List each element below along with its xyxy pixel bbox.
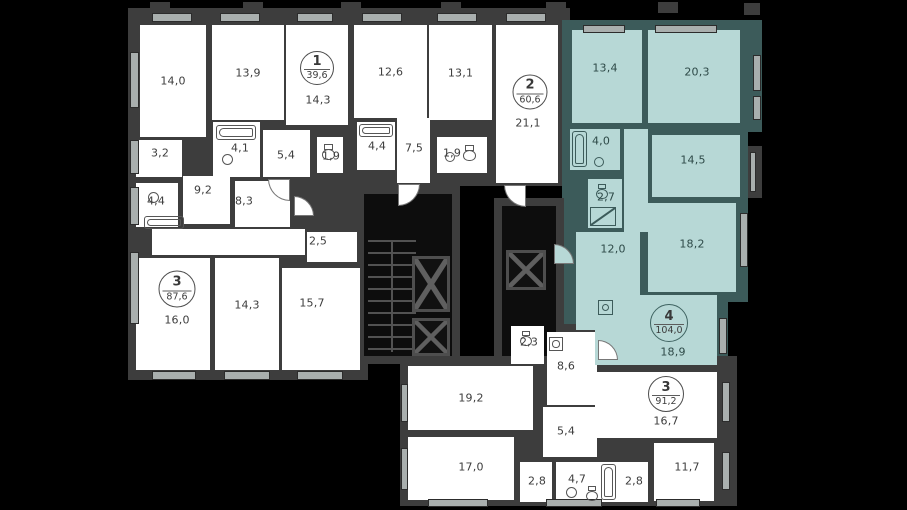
room-area-label: 2,7: [597, 191, 615, 204]
room-area-label: 15,7: [299, 297, 324, 310]
bathtub-icon: [601, 464, 616, 500]
window-mark: [152, 13, 192, 22]
room-13-4[interactable]: [572, 30, 642, 123]
elevator-icon: [412, 256, 450, 312]
washer-icon: [549, 337, 563, 351]
room-area-label: 5,4: [557, 425, 575, 438]
wall-slab: [341, 2, 361, 13]
wall-slab: [441, 2, 461, 13]
room-area-label: 4,1: [231, 142, 249, 155]
room-area-label: 1,9: [322, 150, 340, 163]
window-mark: [220, 13, 260, 22]
stairs-icon: [391, 240, 393, 352]
room-area-label: 5,4: [277, 149, 295, 162]
unit-number: 3: [661, 381, 670, 395]
room-area-label: 13,1: [448, 66, 473, 79]
room-area-label: 9,2: [194, 184, 212, 197]
window-mark: [753, 55, 761, 91]
room-area-label: 14,3: [305, 94, 330, 107]
elevator-icon: [412, 318, 450, 356]
shower-icon: [590, 207, 616, 226]
room-area-label: 16,7: [653, 415, 678, 428]
unit-total-area: 91,2: [655, 397, 676, 407]
window-mark: [506, 13, 546, 22]
room-area-label: 4,4: [147, 195, 165, 208]
room-area-label: 14,3: [234, 299, 259, 312]
window-mark: [152, 371, 196, 380]
toilet-icon: [463, 145, 476, 161]
unit-number: 4: [664, 310, 673, 324]
room-area-label: 2,3: [520, 336, 538, 349]
unit-number: 3: [172, 276, 181, 290]
room-area-label: 8,3: [235, 195, 253, 208]
bathtub-icon: [144, 216, 184, 229]
washer-icon: [598, 300, 613, 315]
window-mark: [401, 384, 408, 422]
bathtub-icon: [572, 131, 587, 167]
room-area-label: 14,5: [680, 154, 705, 167]
room-area-label: 19,2: [458, 392, 483, 405]
window-mark: [130, 187, 139, 225]
window-mark: [583, 25, 625, 33]
hallway: [152, 229, 305, 255]
window-mark: [655, 25, 717, 33]
room-area-label: 11,7: [674, 461, 699, 474]
hallway[interactable]: [624, 129, 648, 232]
wall-slab: [744, 3, 760, 15]
toilet-icon: [586, 486, 598, 501]
room-area-label: 14,0: [160, 75, 185, 88]
window-mark: [401, 448, 408, 490]
room-area-label: 18,2: [679, 238, 704, 251]
unit-total-area: 104,0: [655, 326, 682, 336]
room-area-label: 12,0: [600, 243, 625, 256]
room-area-label: 16,0: [164, 314, 189, 327]
room-14-3: [215, 258, 279, 370]
window-mark: [362, 13, 402, 22]
window-mark: [297, 13, 333, 22]
bathtub-icon: [216, 125, 256, 140]
unit-badge-1[interactable]: 139,6: [300, 51, 334, 85]
unit-badge-3[interactable]: 387,6: [159, 271, 196, 308]
room-area-label: 12,6: [378, 65, 403, 78]
wall-slab: [546, 2, 566, 13]
unit-total-area: 87,6: [166, 292, 187, 302]
unit-badge-4[interactable]: 4104,0: [650, 304, 688, 342]
window-mark: [719, 318, 727, 354]
room-area-label: 13,9: [235, 66, 260, 79]
wall-slab: [243, 2, 263, 13]
room-area-label: 2,8: [528, 475, 546, 488]
unit-badge-3[interactable]: 391,2: [648, 376, 684, 412]
window-mark: [722, 382, 730, 422]
window-mark: [297, 371, 343, 380]
unit-badge-2[interactable]: 260,6: [513, 75, 548, 110]
sink-icon: [222, 154, 233, 165]
window-mark: [428, 499, 488, 507]
window-mark: [130, 52, 139, 108]
room-area-label: 17,0: [458, 461, 483, 474]
unit-total-area: 39,6: [306, 71, 327, 81]
room-15-7: [282, 268, 360, 370]
window-mark: [437, 13, 477, 22]
room-area-label: 21,1: [515, 117, 540, 130]
room-area-label: 8,6: [557, 360, 575, 373]
room-area-label: 13,4: [592, 62, 617, 75]
window-mark: [722, 452, 730, 490]
room-area-label: 1,9: [443, 147, 461, 160]
room-area-label: 2,5: [309, 235, 327, 248]
elevator-icon: [506, 250, 546, 290]
window-mark: [224, 371, 270, 380]
floor-plan: 14,013,914,312,613,121,13,24,15,41,94,47…: [0, 0, 907, 510]
wall-slab: [658, 2, 678, 13]
wall-slab: [150, 2, 170, 13]
room-area-label: 3,2: [151, 147, 169, 160]
room-area-label: 2,8: [625, 475, 643, 488]
room-area-label: 4,0: [592, 135, 610, 148]
sink-icon: [566, 487, 577, 498]
bathtub-icon: [359, 124, 393, 137]
unit-number: 2: [525, 79, 534, 93]
room-area-label: 4,4: [368, 140, 386, 153]
unit-total-area: 60,6: [519, 95, 540, 105]
window-mark: [130, 140, 139, 174]
window-mark: [130, 252, 139, 324]
window-mark: [740, 213, 748, 267]
room-area-label: 18,9: [660, 346, 685, 359]
sink-icon: [594, 157, 604, 167]
room-area-label: 7,5: [405, 142, 423, 155]
unit-number: 1: [312, 55, 321, 69]
window-mark: [753, 96, 761, 120]
room-area-label: 4,7: [568, 473, 586, 486]
room-area-label: 20,3: [684, 66, 709, 79]
window-mark: [656, 499, 700, 507]
window-mark: [750, 152, 756, 192]
